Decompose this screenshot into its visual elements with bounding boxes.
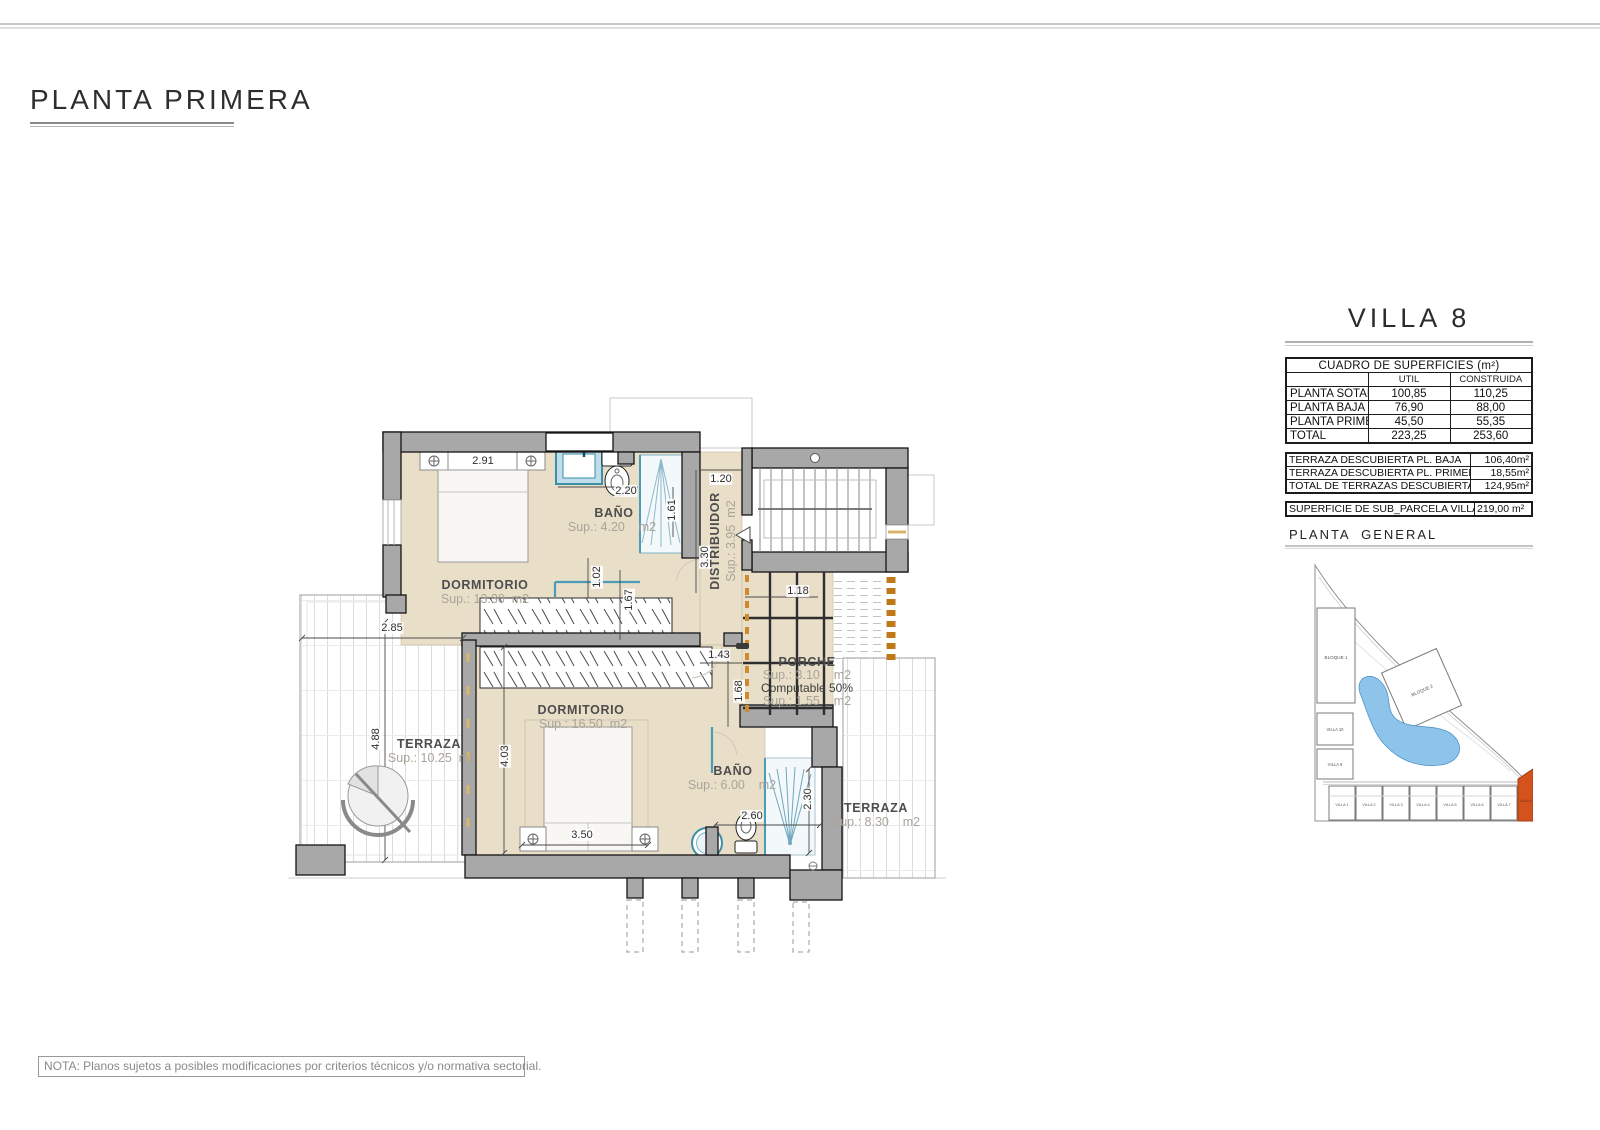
- surfaces-col-empty: [1286, 373, 1368, 387]
- villas-row: VILLA 1 VILLA 2 VILLA 3 VILLA 4 VILLA 5 …: [1329, 786, 1517, 820]
- planta-general-label: PLANTA GENERAL: [1289, 527, 1533, 542]
- column-projections: [627, 900, 809, 952]
- villa7-label: VILLA 7: [1497, 803, 1510, 807]
- surfaces-row-label: PLANTA BAJA: [1286, 401, 1368, 415]
- surfaces-row-construida: 88,00: [1450, 401, 1532, 415]
- dim-2-60: 2.60: [740, 810, 763, 822]
- table-row: TERRAZA DESCUBIERTA PL. PRIMERA 18,55m²: [1286, 467, 1532, 480]
- room-sup-bano1: Sup.: 4.20 m2: [568, 520, 656, 534]
- villa1-label: VILLA 1: [1335, 803, 1348, 807]
- terrazas-row-value: 106,40m²: [1471, 453, 1533, 467]
- room-sup-terraza2: Sup.: 8.30 m2: [832, 815, 920, 829]
- dim-2-20: 2.20: [614, 485, 637, 497]
- surfaces-row-label: PLANTA SOTANO: [1286, 387, 1368, 401]
- parcela-table: SUPERFICIE DE SUB_PARCELA VILLA 8 219,00…: [1285, 501, 1533, 517]
- table-row: TERRAZA DESCUBIERTA PL. BAJA 106,40m²: [1286, 453, 1532, 467]
- dim-1-18: 1.18: [786, 585, 809, 597]
- drawing-sheet: { "title": "PLANTA PRIMERA", "note": "NO…: [0, 0, 1600, 1130]
- villa-title: VILLA 8: [1285, 303, 1533, 334]
- villa4-label: VILLA 4: [1416, 803, 1429, 807]
- dim-3-50: 3.50: [570, 829, 593, 841]
- room-label-bano1: BAÑO: [594, 506, 633, 520]
- table-row: PLANTA SOTANO 100,85 110,25: [1286, 387, 1532, 401]
- surfaces-table-header: CUADRO DE SUPERFICIES (m²): [1286, 358, 1532, 373]
- room-sup-distribuidor: Sup.: 3.95 m2: [724, 500, 738, 581]
- villa-panel: VILLA 8 CUADRO DE SUPERFICIES (m²) UTIL …: [1285, 303, 1533, 825]
- planta-general-rule: [1285, 545, 1533, 547]
- room-sup-bano2: Sup.: 6.00 m2: [688, 778, 776, 792]
- villa-title-underline: [1285, 341, 1533, 343]
- dim-2-30: 2.30: [802, 787, 814, 810]
- dim-2-91: 2.91: [471, 455, 494, 467]
- terrazas-row-value: 18,55m²: [1471, 467, 1533, 480]
- dim-1-68: 1.68: [733, 679, 745, 702]
- dim-1-43: 1.43: [707, 649, 730, 661]
- terrazas-row-label: TERRAZA DESCUBIERTA PL. PRIMERA: [1286, 467, 1471, 480]
- dim-1-61: 1.61: [666, 498, 678, 521]
- room-label-terraza2: TERRAZA: [844, 801, 908, 815]
- villa2-label: VILLA 2: [1362, 803, 1375, 807]
- parcela-value: 219,00 m²: [1475, 502, 1533, 516]
- site-plan-thumbnail: BLOQUE 1 BLOQUE 2 VILLA 10 VILLA 9 VILLA…: [1285, 553, 1533, 825]
- terrazas-row-value: 124,95m²: [1471, 480, 1533, 494]
- parcela-label: SUPERFICIE DE SUB_PARCELA VILLA 8: [1286, 502, 1475, 516]
- dim-4-03: 4.03: [499, 744, 511, 767]
- table-row: SUPERFICIE DE SUB_PARCELA VILLA 8 219,00…: [1286, 502, 1532, 516]
- terrazas-row-label: TERRAZA DESCUBIERTA PL. BAJA: [1286, 453, 1471, 467]
- surfaces-table: CUADRO DE SUPERFICIES (m²) UTIL CONSTRUI…: [1285, 357, 1533, 444]
- room-label-bano2: BAÑO: [713, 764, 752, 778]
- villa9-label: VILLA 9: [1328, 762, 1343, 767]
- surfaces-row-util: 223,25: [1368, 429, 1450, 444]
- villa-title-underline-2: [1285, 345, 1533, 346]
- room-label-dormitorio1: DORMITORIO: [441, 578, 528, 592]
- villa10-label: VILLA 10: [1327, 727, 1345, 732]
- room-label-dormitorio2: DORMITORIO: [537, 703, 624, 717]
- planta-general-rule-2: [1285, 548, 1533, 549]
- surfaces-row-construida: 253,60: [1450, 429, 1532, 444]
- dim-1-02: 1.02: [591, 565, 603, 588]
- page-title: PLANTA PRIMERA: [30, 84, 313, 116]
- surfaces-row-util: 45,50: [1368, 415, 1450, 429]
- bloque1-label: BLOQUE 1: [1325, 655, 1348, 660]
- page-title-underline-2: [30, 126, 234, 127]
- villa6-label: VILLA 6: [1470, 803, 1483, 807]
- room-sup-dormitorio2: Sup.: 16.50 m2: [539, 717, 627, 731]
- room-label-porche: PORCHE: [778, 655, 835, 669]
- dim-1-20: 1.20: [709, 473, 732, 485]
- surfaces-row-label: TOTAL: [1286, 429, 1368, 444]
- villa3-label: VILLA 3: [1389, 803, 1402, 807]
- bed-icon-1: [420, 452, 545, 562]
- table-row: TOTAL 223,25 253,60: [1286, 429, 1532, 444]
- sink-icon-1: [556, 448, 602, 484]
- surfaces-row-label: PLANTA PRIMERA: [1286, 415, 1368, 429]
- room-sup-dormitorio1: Sup.: 13.30 m2: [441, 592, 529, 606]
- note: NOTA: Planos sujetos a posibles modifica…: [38, 1056, 525, 1077]
- surfaces-col-util: UTIL: [1368, 373, 1450, 387]
- sheet-top-rule-2: [0, 27, 1600, 29]
- page-title-underline: [30, 122, 234, 124]
- pergola-hatch: [833, 575, 886, 661]
- dim-1-67: 1.67: [623, 588, 635, 611]
- floor-plan: 2.91 2.20 1.61 1.20 3.30 1.02 1.67 2.85 …: [288, 375, 948, 967]
- room-computable-porche: Computable 50%: [761, 681, 853, 695]
- room-label-distribuidor: DISTRIBUIDOR: [708, 492, 722, 589]
- terrazas-table: TERRAZA DESCUBIERTA PL. BAJA 106,40m² TE…: [1285, 452, 1533, 494]
- room-sup-porche: Sup.: 3.10 m2: [763, 668, 851, 682]
- surfaces-row-construida: 55,35: [1450, 415, 1532, 429]
- surfaces-col-construida: CONSTRUIDA: [1450, 373, 1532, 387]
- table-row: PLANTA PRIMERA 45,50 55,35: [1286, 415, 1532, 429]
- surfaces-row-util: 76,90: [1368, 401, 1450, 415]
- surfaces-row-construida: 110,25: [1450, 387, 1532, 401]
- sheet-top-rule: [0, 23, 1600, 25]
- room-sup2-porche: Sup.: 1.55 m2: [763, 694, 851, 708]
- dim-2-85: 2.85: [380, 622, 403, 634]
- parasol-icon: [318, 740, 438, 860]
- villa5-label: VILLA 5: [1443, 803, 1456, 807]
- table-row: PLANTA BAJA 76,90 88,00: [1286, 401, 1532, 415]
- surfaces-row-util: 100,85: [1368, 387, 1450, 401]
- table-row: TOTAL DE TERRAZAS DESCUBIERTAS 124,95m²: [1286, 480, 1532, 494]
- villa8-label: VILLA 8: [1520, 799, 1532, 803]
- terrazas-row-label: TOTAL DE TERRAZAS DESCUBIERTAS: [1286, 480, 1471, 494]
